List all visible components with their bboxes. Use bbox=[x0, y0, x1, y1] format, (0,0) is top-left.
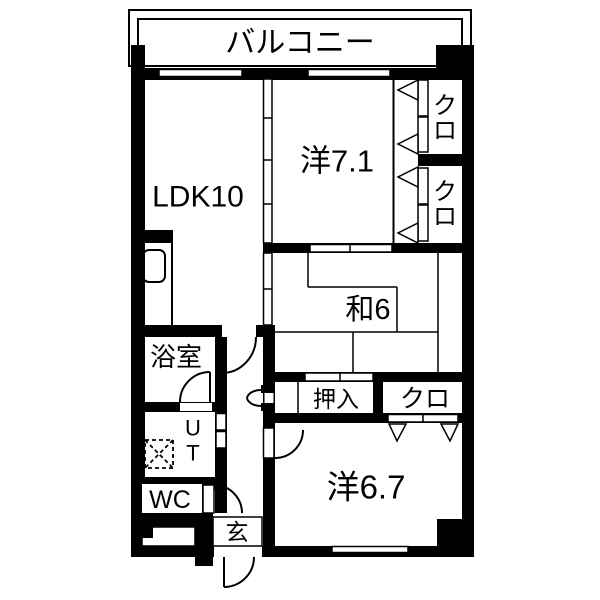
wall-oshiire-closet-divider bbox=[373, 382, 383, 413]
closet1-label-top: ク bbox=[433, 93, 457, 120]
balcony-label: バルコニー bbox=[225, 27, 374, 60]
door-leaf bbox=[418, 117, 428, 152]
closet-south-label: クロ bbox=[400, 385, 450, 413]
western2-door-leaf bbox=[264, 428, 275, 458]
ut-label-top: U bbox=[185, 416, 201, 441]
closet2-label-top: ク bbox=[433, 179, 457, 206]
sliding-partition-ldk-japanese bbox=[264, 253, 273, 325]
wall-right bbox=[462, 45, 474, 557]
closet1-label-bottom: ロ bbox=[433, 118, 457, 145]
window-western1 bbox=[308, 70, 390, 77]
window-western2 bbox=[332, 547, 408, 553]
room-western2-label: 洋6.7 bbox=[327, 469, 406, 506]
room-western1-label: 洋7.1 bbox=[300, 144, 374, 179]
hall-closet-hinge bbox=[261, 403, 271, 411]
ut-door-leaf bbox=[216, 414, 226, 431]
sliding-partition-ldk-western1 bbox=[264, 79, 273, 243]
hall-closet-opening bbox=[265, 393, 274, 403]
wall-bottom bbox=[131, 546, 474, 557]
oshiire-label: 押入 bbox=[313, 386, 359, 412]
entrance-label: 玄 bbox=[226, 519, 249, 545]
room-ldk-label: LDK10 bbox=[152, 181, 244, 214]
wall-ldk-hall-left bbox=[145, 325, 222, 337]
entrance-opening bbox=[214, 546, 262, 557]
background bbox=[0, 0, 600, 600]
partition-track bbox=[264, 79, 273, 243]
door-leaf bbox=[418, 205, 428, 241]
room-japanese-label: 和6 bbox=[345, 294, 390, 326]
door-track bbox=[310, 245, 392, 253]
wall-below-wc bbox=[131, 513, 213, 527]
wall-corner-bottom-right bbox=[437, 519, 474, 557]
ut-door-leaf bbox=[216, 432, 226, 449]
wc-label: WC bbox=[149, 486, 191, 514]
floorplan-drawing: バルコニー LDK10 洋7.1 和6 洋6.7 浴室 押入 クロ ク ロ ク … bbox=[0, 0, 600, 600]
fusuma-japanese-oshiire bbox=[305, 373, 373, 381]
door-track bbox=[305, 373, 373, 381]
room-bathroom-label: 浴室 bbox=[150, 342, 202, 372]
wall-bath-bottom bbox=[131, 402, 227, 412]
wall-corner-top-left bbox=[131, 45, 145, 79]
bath-door-opening bbox=[180, 403, 212, 411]
window-ldk bbox=[159, 70, 242, 77]
niche-step bbox=[142, 527, 153, 538]
wall-closets-separator bbox=[418, 154, 462, 166]
wc-door-leaf bbox=[203, 485, 214, 513]
door-leaf bbox=[418, 80, 428, 116]
ut-label-bottom: T bbox=[186, 441, 199, 466]
sliding-door-western1-japanese bbox=[310, 245, 392, 253]
wall-kitchen-stub bbox=[145, 230, 173, 243]
closet2-label-bottom: ロ bbox=[433, 204, 457, 231]
door-leaf bbox=[418, 168, 428, 204]
hall-closet-hinge bbox=[261, 385, 271, 393]
ldk-hall-opening bbox=[222, 326, 256, 336]
floorplan-page: バルコニー LDK10 洋7.1 和6 洋6.7 浴室 押入 クロ ク ロ ク … bbox=[0, 0, 600, 600]
